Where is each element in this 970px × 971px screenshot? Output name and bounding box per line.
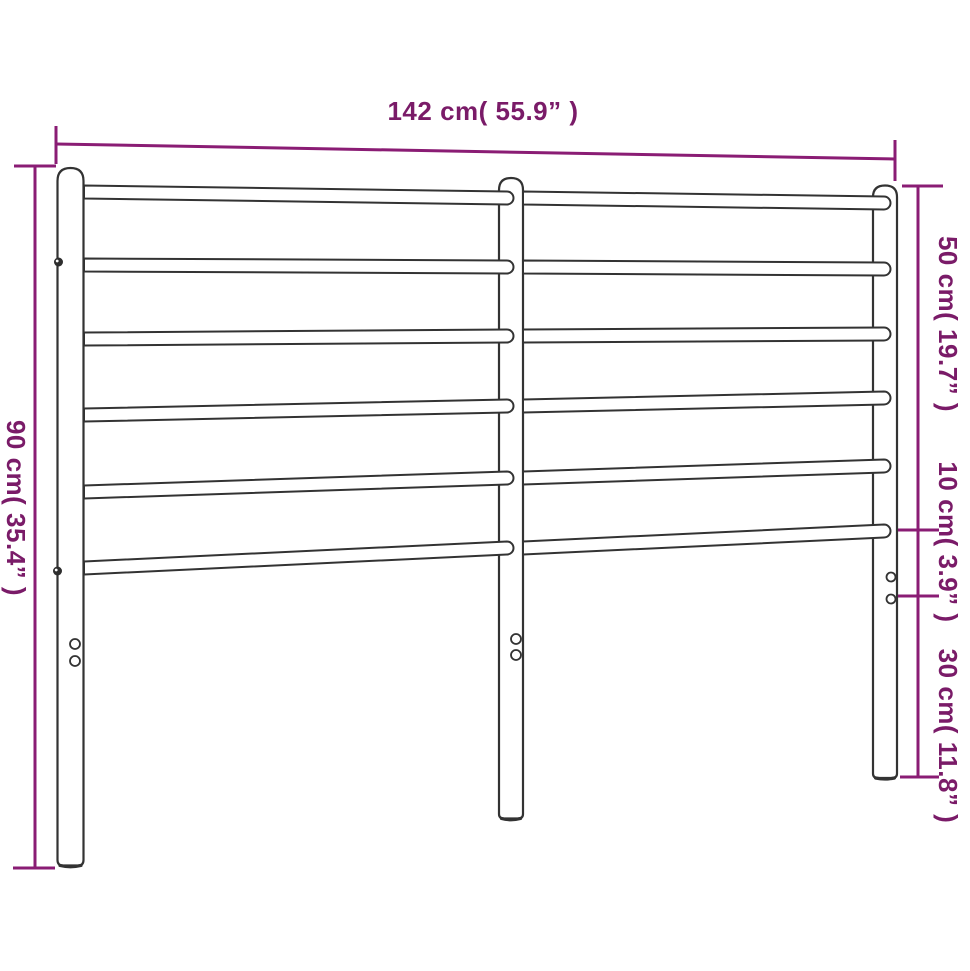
rail-bar	[523, 261, 891, 276]
mount-hole	[887, 595, 896, 604]
width-dimension-label: 142 cm( 55.9” )	[387, 96, 578, 126]
mount-hole	[70, 639, 80, 649]
rail-bar	[523, 525, 891, 555]
segment-10cm-label: 10 cm( 3.9” )	[933, 461, 963, 622]
side-screw-hole	[53, 567, 62, 576]
rail-bar	[84, 400, 514, 422]
rail-bar	[84, 186, 514, 205]
side-screw-hole-glint	[56, 260, 59, 263]
segment-30cm-label: 30 cm( 11.8” )	[933, 649, 963, 824]
diagram-canvas: 142 cm( 55.9” ) 90 cm( 35.4” ) 50 cm( 19…	[0, 0, 970, 971]
headboard-frame	[53, 168, 897, 867]
rail-bar	[84, 259, 514, 274]
rail-bar	[84, 472, 514, 499]
width-extent-line	[56, 144, 895, 159]
rail-bar	[523, 328, 891, 343]
mount-hole	[70, 656, 80, 666]
dimension-width: 142 cm( 55.9” )	[56, 96, 895, 181]
mount-hole	[511, 634, 521, 644]
post-middle-foot	[502, 819, 521, 820]
rail-bar	[84, 330, 514, 346]
side-screw-hole	[54, 258, 63, 267]
rails	[84, 186, 891, 575]
post-left	[58, 168, 84, 866]
dimension-height: 90 cm( 35.4” )	[1, 166, 56, 868]
rail-bar	[523, 192, 891, 210]
dimension-right-segments: 50 cm( 19.7” ) 10 cm( 3.9” ) 30 cm( 11.8…	[898, 186, 963, 823]
post-left-foot	[60, 866, 81, 867]
segment-50cm-label: 50 cm( 19.7” )	[933, 236, 963, 412]
height-dimension-label: 90 cm( 35.4” )	[1, 420, 31, 596]
screw-holes	[53, 258, 896, 667]
side-screw-hole-glint	[55, 569, 58, 572]
rail-bar	[523, 460, 891, 485]
post-right-foot	[876, 778, 895, 779]
rail-bar	[84, 542, 514, 575]
mount-hole	[887, 573, 896, 582]
mount-hole	[511, 650, 521, 660]
headboard-dimension-diagram: 142 cm( 55.9” ) 90 cm( 35.4” ) 50 cm( 19…	[0, 0, 970, 971]
rail-bar	[523, 392, 891, 413]
